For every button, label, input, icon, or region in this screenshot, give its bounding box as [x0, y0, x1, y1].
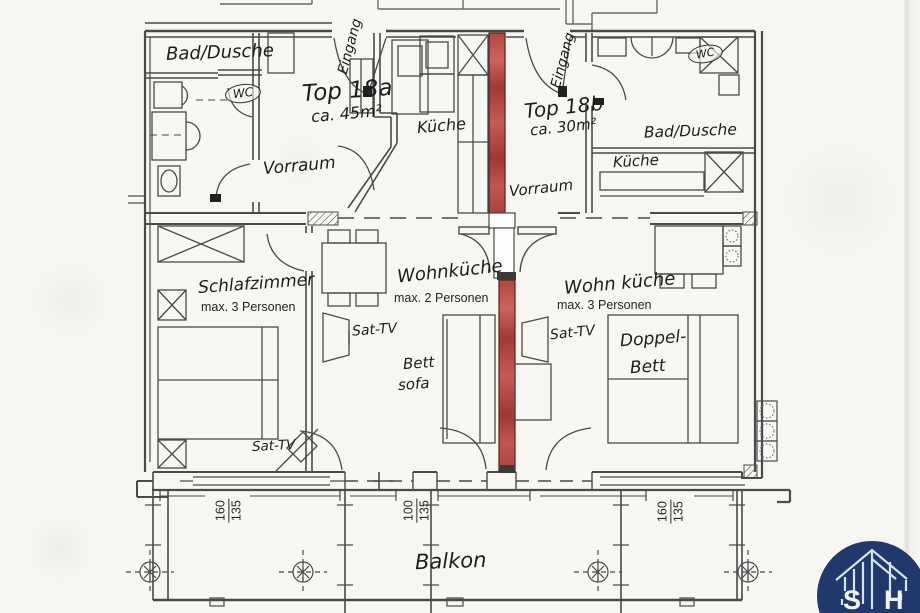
- agency-logo: [817, 541, 920, 613]
- dimension-2-width: 100: [402, 501, 415, 522]
- logo-letter-h: H: [884, 585, 904, 613]
- double-bed-label-line1: Doppel-: [619, 329, 686, 351]
- dimension-label-1: 160 135: [208, 490, 250, 532]
- living-left-capacity: max. 2 Personen: [394, 292, 489, 305]
- highlighted-red-wall: [489, 33, 516, 473]
- dimension-3-height: 135: [673, 502, 686, 523]
- room-label-bath-b: Bad/Dusche: [644, 122, 737, 141]
- dimension-3-width: 160: [656, 502, 669, 523]
- dimension-1-height: 135: [231, 501, 244, 522]
- sofa-bed-label-line2: sofa: [398, 376, 430, 393]
- balcony-label: Balkon: [415, 550, 487, 573]
- bedroom-sat-tv-label: Sat-TV: [252, 439, 296, 455]
- dimension-1-width: 160: [214, 501, 227, 522]
- dimension-2-height: 135: [419, 501, 432, 522]
- dining-table-left: [322, 230, 386, 306]
- dimension-label-3: 160 135: [650, 491, 692, 533]
- double-bed-label-line2: Bett: [629, 358, 666, 377]
- room-label-kitchen-a: Küche: [416, 116, 466, 136]
- living-left-sat-tv-label: Sat-TV: [352, 321, 398, 338]
- floor-plan-page: Bad/Dusche WC Top 18a ca. 45m² Eingang V…: [0, 0, 920, 613]
- sofa-bed-label-line1: Bett: [403, 355, 435, 372]
- living-right-capacity: max. 3 Personen: [557, 299, 652, 312]
- dimension-label-2: 100 135: [396, 490, 438, 532]
- floor-plan-drawing: [0, 0, 920, 613]
- room-label-kitchen-b: Küche: [613, 153, 660, 170]
- radiator-column: [757, 401, 777, 461]
- bathroom-a-fixtures: [150, 82, 230, 196]
- bedroom-capacity: max. 3 Personen: [201, 301, 296, 314]
- bedroom-furniture: [158, 226, 318, 471]
- room-label-bath-a: Bad/Dusche: [166, 42, 274, 64]
- logo-letter-s: S: [843, 585, 861, 613]
